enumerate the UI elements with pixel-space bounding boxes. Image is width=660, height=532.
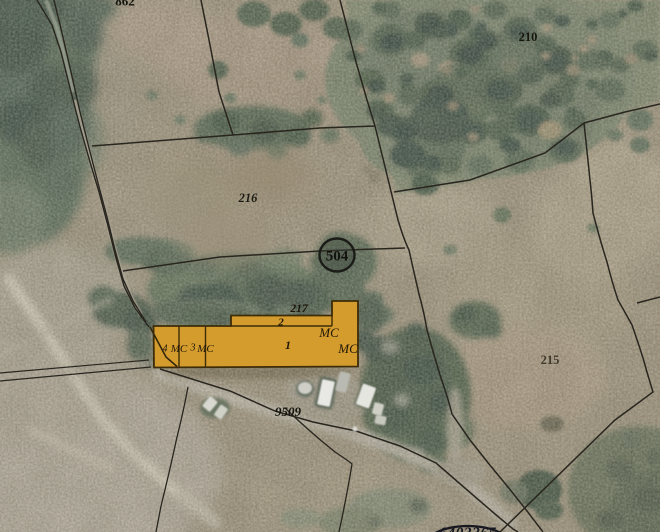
svg-text:4: 4 bbox=[163, 344, 168, 355]
svg-text:3: 3 bbox=[190, 343, 196, 354]
svg-text:210: 210 bbox=[519, 30, 538, 44]
svg-text:215: 215 bbox=[541, 353, 560, 367]
svg-text:1: 1 bbox=[285, 338, 291, 352]
svg-text:504: 504 bbox=[326, 249, 349, 265]
svg-text:МС: МС bbox=[337, 341, 358, 356]
svg-text:216: 216 bbox=[238, 191, 259, 205]
svg-text:МС: МС bbox=[196, 343, 214, 355]
svg-text:217: 217 bbox=[289, 303, 309, 315]
svg-text:МС: МС bbox=[318, 325, 339, 340]
svg-text:МС: МС bbox=[170, 343, 188, 355]
svg-text:6403365: 6403365 bbox=[439, 525, 497, 532]
svg-text:862: 862 bbox=[115, 0, 135, 9]
svg-text:2: 2 bbox=[277, 317, 284, 329]
svg-text:9509: 9509 bbox=[275, 404, 302, 419]
